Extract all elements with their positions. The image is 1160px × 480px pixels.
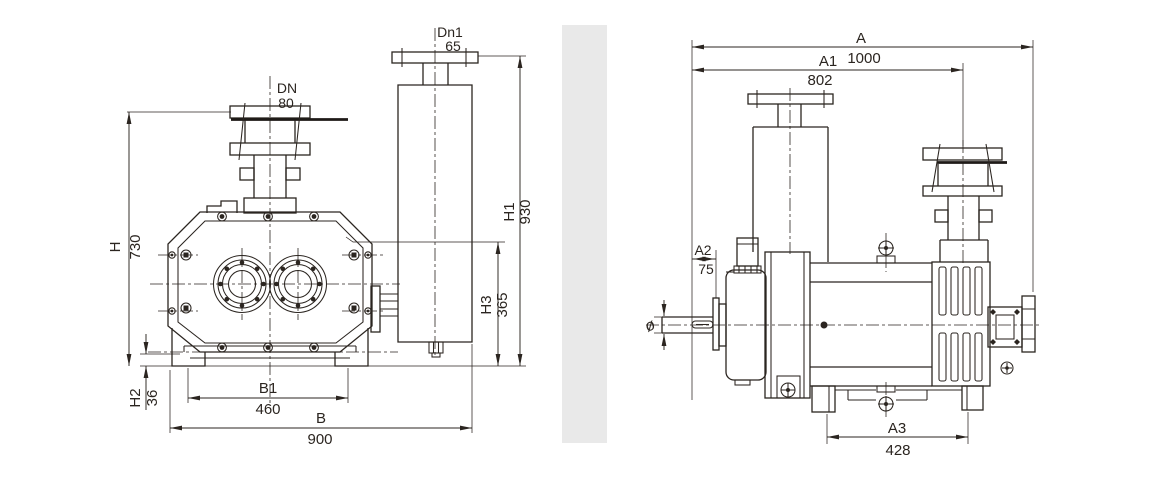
dim-A2-label: A2 xyxy=(694,242,711,258)
dim-H3-value: 365 xyxy=(494,292,511,317)
dim-A-value: 1000 xyxy=(847,50,880,67)
inlet-flange-stack xyxy=(207,103,348,213)
cooling-fins xyxy=(932,262,990,386)
dim-B1-value: 460 xyxy=(255,401,280,418)
dim-H-value: 730 xyxy=(127,234,144,259)
end-flange-box xyxy=(988,296,1035,374)
side-view: A 1000 A1 802 A2 75 A3 428 ø xyxy=(642,30,1042,459)
dim-H1-label: H1 xyxy=(501,202,518,221)
casing-bottom-bolts xyxy=(218,343,319,352)
breather-plug xyxy=(734,238,761,273)
dim-A2-value: 75 xyxy=(698,261,714,277)
drawing-svg: DN 80 Dn1 65 H 730 H1 930 H3 365 H2 36 B… xyxy=(0,0,1160,480)
dim-B-value: 900 xyxy=(307,431,332,448)
dim-B1-label: B1 xyxy=(259,380,277,397)
dim-A1-label: A1 xyxy=(819,53,837,70)
dim-B-label: B xyxy=(316,410,326,427)
side-extension-lines xyxy=(692,40,1033,444)
inlet-flange-stack-side xyxy=(923,144,1007,262)
inlet-label: DN xyxy=(277,80,297,96)
dim-A3-label: A3 xyxy=(888,420,906,437)
drain-plug xyxy=(429,342,443,357)
inlet-value: 80 xyxy=(278,95,294,111)
silencer-tank-side xyxy=(748,90,833,262)
front-extension-lines xyxy=(127,56,526,433)
dim-H2-value: 36 xyxy=(144,390,161,407)
dim-H3-label: H3 xyxy=(478,295,495,314)
dim-H1-value: 930 xyxy=(517,199,534,224)
drive-shaft xyxy=(654,298,726,350)
dim-H2-label: H2 xyxy=(127,388,144,407)
side-dimension-lines xyxy=(664,47,1033,437)
outlet-value: 65 xyxy=(445,38,461,54)
pump-dimension-drawing: DN 80 Dn1 65 H 730 H1 930 H3 365 H2 36 B… xyxy=(0,0,1160,480)
dim-H-label: H xyxy=(107,242,124,253)
discharge-side-flange xyxy=(371,286,398,332)
front-view: DN 80 Dn1 65 H 730 H1 930 H3 365 H2 36 B… xyxy=(107,24,534,448)
dim-A-label: A xyxy=(856,30,866,47)
gear-housing xyxy=(726,270,766,385)
dim-A3-value: 428 xyxy=(885,442,910,459)
side-feet xyxy=(812,386,983,412)
divider-bar xyxy=(562,25,607,443)
dim-A1-value: 802 xyxy=(807,72,832,89)
